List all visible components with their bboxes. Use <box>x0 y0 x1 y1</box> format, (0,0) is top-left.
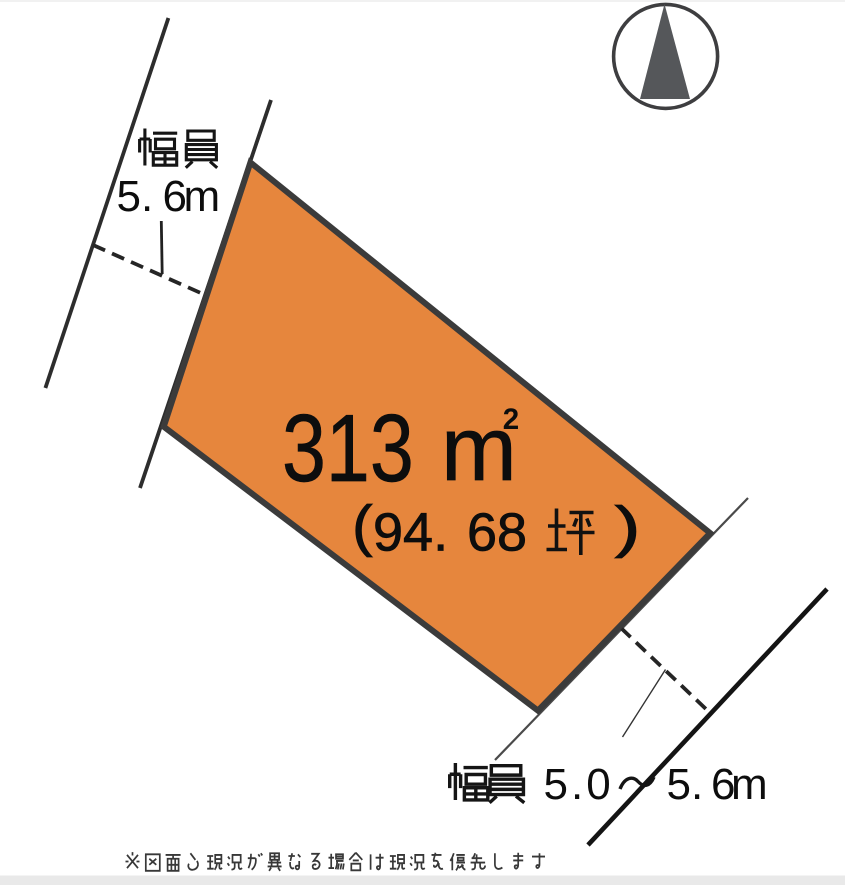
svg-text:5.: 5. <box>667 760 704 809</box>
svg-text:): ) <box>615 496 641 559</box>
svg-text:2: 2 <box>503 403 519 436</box>
svg-text:5.: 5. <box>117 172 154 221</box>
svg-text:313: 313 <box>282 394 414 502</box>
svg-text:68: 68 <box>467 503 527 563</box>
svg-text:(: ( <box>352 494 373 558</box>
svg-text:94.: 94. <box>373 503 448 563</box>
svg-text:5.0: 5.0 <box>544 760 614 809</box>
svg-text:m: m <box>731 760 768 809</box>
svg-text:m: m <box>184 172 221 221</box>
